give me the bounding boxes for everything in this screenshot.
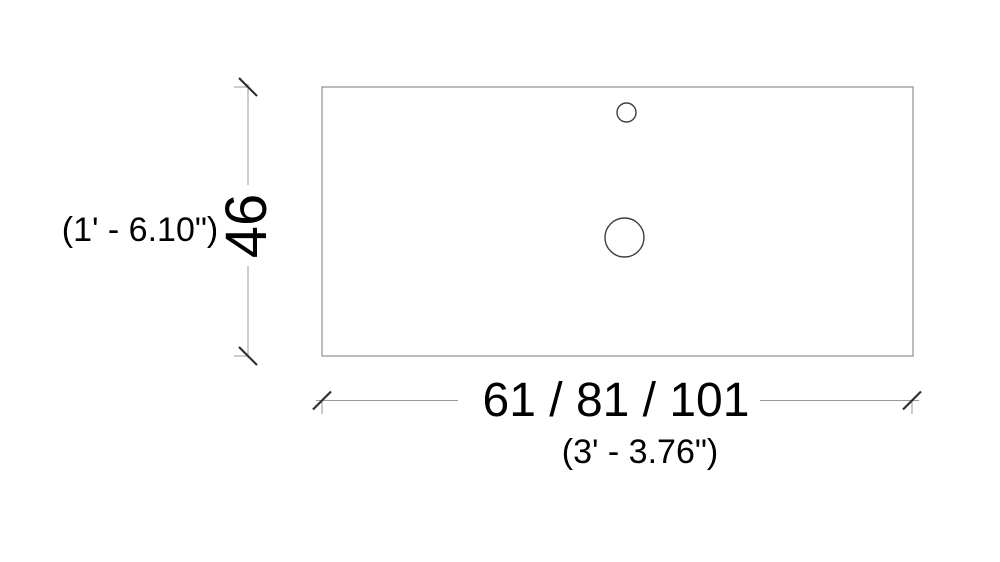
width-dimension-value: 61 / 81 / 101 xyxy=(483,377,750,425)
width-dimension-imperial: (3' - 3.76") xyxy=(562,435,719,469)
drain-hole-circle xyxy=(605,218,644,257)
technical-drawing-canvas: 46 (1' - 6.10") 61 / 81 / 101 (3' - 3.76… xyxy=(0,0,1000,562)
height-dimension-imperial: (1' - 6.10") xyxy=(62,213,219,247)
drawing-svg xyxy=(0,0,1000,562)
countertop-outline xyxy=(322,87,913,356)
height-dimension-value: 46 xyxy=(218,194,276,259)
faucet-hole-circle xyxy=(617,103,636,122)
